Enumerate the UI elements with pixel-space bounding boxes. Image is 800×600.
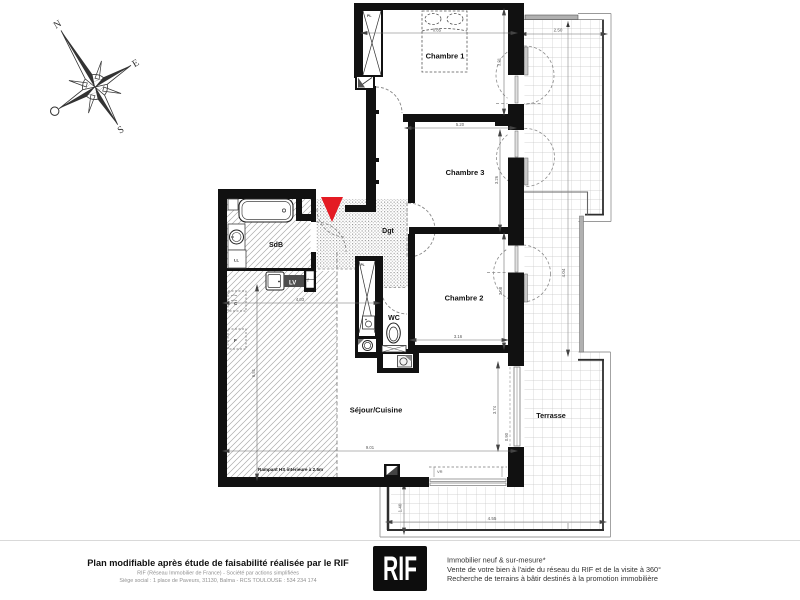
svg-text:3.16: 3.16 [454,334,463,339]
svg-text:4.03: 4.03 [296,297,305,302]
svg-text:Immobilier neuf & sur-mesure*: Immobilier neuf & sur-mesure* [447,556,546,565]
svg-text:RIF: RIF [383,550,417,588]
svg-text:3.08: 3.08 [498,286,503,295]
svg-text:9.01: 9.01 [366,445,375,450]
svg-text:RIF (Réseau Immobilier de Fran: RIF (Réseau Immobilier de France) - Soci… [137,571,299,577]
svg-text:VR: VR [437,469,443,474]
svg-text:PL: PL [361,263,365,267]
svg-text:TE: TE [306,278,310,282]
svg-text:Chambre 2: Chambre 2 [445,294,484,303]
svg-text:WC: WC [388,315,400,322]
svg-text:Dgt: Dgt [382,228,394,235]
svg-text:Terrasse: Terrasse [536,411,565,420]
svg-text:0.85: 0.85 [433,28,442,33]
svg-text:Plan modifiable après étude de: Plan modifiable après étude de faisabili… [87,558,349,568]
svg-text:3.26: 3.26 [494,175,499,184]
svg-text:4.55: 4.55 [488,516,497,521]
svg-text:3.21: 3.21 [497,57,502,66]
svg-text:F: F [234,338,237,343]
svg-text:LL: LL [234,258,239,263]
svg-text:Rampant HS intérieure à 2.5m: Rampant HS intérieure à 2.5m [258,467,323,472]
svg-text:Vente de votre bien à l'aide d: Vente de votre bien à l'aide du réseau d… [447,565,661,574]
svg-text:6.51: 6.51 [251,368,256,377]
svg-text:Chambre 3: Chambre 3 [446,168,485,177]
svg-text:Siège social : 1 place de Pave: Siège social : 1 place de Paveurs, 31130… [119,578,316,584]
svg-text:Chambre 1: Chambre 1 [426,52,465,61]
svg-text:3.74: 3.74 [492,405,497,414]
svg-text:1.40: 1.40 [398,503,403,512]
svg-text:0.90: 0.90 [504,432,509,441]
svg-text:Séjour/Cuisine: Séjour/Cuisine [350,406,403,415]
svg-text:SdB: SdB [269,242,283,249]
svg-text:4.04: 4.04 [561,268,566,277]
svg-text:2.50: 2.50 [554,28,563,33]
svg-text:5.20: 5.20 [456,122,465,127]
svg-text:Recherche de terrains à bâtir: Recherche de terrains à bâtir destinés à… [447,574,658,583]
svg-text:LV: LV [289,281,296,287]
